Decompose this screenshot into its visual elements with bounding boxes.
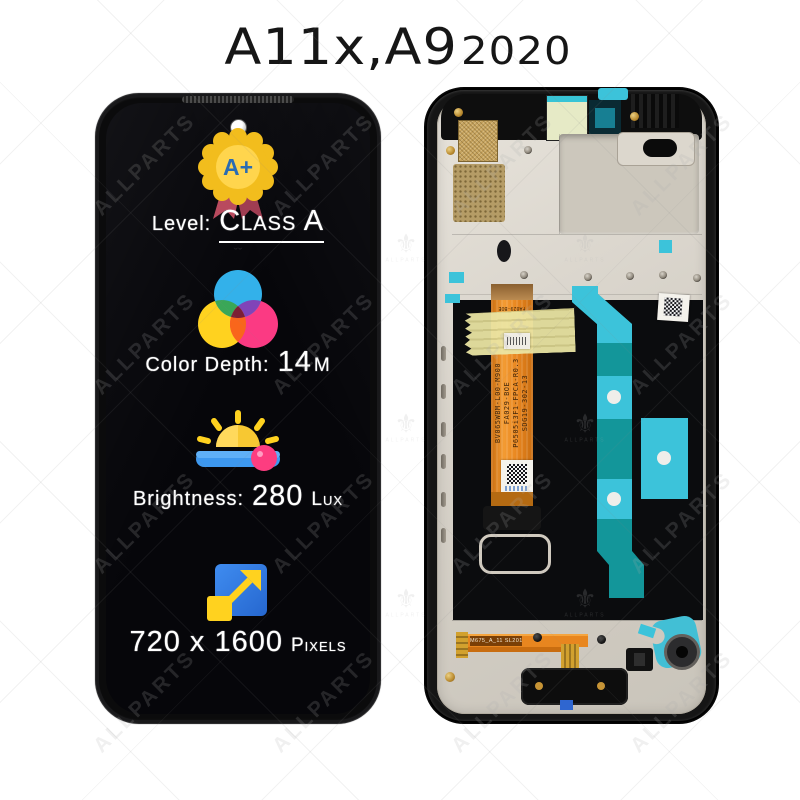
brightness-unit: Lux	[311, 489, 343, 511]
gold-connector	[561, 644, 579, 668]
sensor-bracket	[626, 648, 653, 671]
watermark-logo-caption: ALLPARTS	[385, 259, 426, 264]
rail-slot	[441, 384, 446, 399]
model-year: 2020	[461, 29, 572, 73]
color-depth-number: 14	[278, 346, 312, 379]
flex-top-connector	[491, 284, 533, 300]
earpiece-grille	[182, 96, 294, 103]
flex-top-print: FA029-BOE	[495, 302, 529, 311]
watermark-logo-caption: ALLPARTS	[385, 439, 426, 444]
rail-slot	[441, 492, 446, 507]
bottom-flex-print: M675_A_11 SL2012	[470, 636, 522, 646]
resolution-number: 720 x 1600	[129, 626, 283, 659]
product-image: A11x,A9 2020 A+	[0, 0, 800, 800]
lotus-icon: ⚜	[385, 411, 426, 437]
bottom-flex-trace	[465, 647, 561, 652]
speaker-contact	[535, 682, 543, 690]
spec-resolution: 720 x 1600pixels	[106, 626, 370, 659]
spec-level: Level: Class A	[106, 205, 370, 243]
brightness-number: 280	[252, 480, 303, 513]
grade-badge-text: A+	[223, 154, 253, 180]
qr-code	[663, 297, 682, 316]
watermark-logo: ⚜ALLPARTS	[385, 231, 426, 264]
lotus-icon: ⚜	[385, 586, 426, 612]
cyan-tab	[445, 294, 460, 303]
lotus-icon: ⚜	[385, 411, 426, 437]
spec-color-depth: Color Depth: 14m	[106, 346, 370, 379]
barcode	[507, 337, 527, 345]
screw-black	[597, 635, 606, 644]
connector-bracket	[479, 534, 551, 574]
phone-screen: A+ Level: Class A ˇˇ	[106, 103, 370, 714]
label-text-row	[505, 486, 529, 491]
cyan-tab	[449, 272, 464, 283]
watermark-logo: ⚜ALLPARTS	[385, 231, 426, 264]
mini-barcode-label	[504, 333, 530, 349]
sensor-notch	[634, 653, 645, 666]
cyan-tab	[598, 88, 628, 100]
watermark-logo-caption: ALLPARTS	[385, 614, 426, 619]
rail-slot	[441, 422, 446, 437]
watermark-logo-caption: ALLPARTS	[385, 439, 426, 444]
resolution-unit: pixels	[291, 635, 347, 657]
level-label: Level:	[152, 213, 211, 236]
spec-brightness: Brightness: 280Lux	[106, 480, 370, 513]
brightness-label: Brightness:	[133, 488, 244, 511]
gold-contact-pads	[456, 632, 468, 658]
lotus-icon: ⚜	[385, 231, 426, 257]
rear-camera-lens	[676, 646, 688, 658]
watermark-logo: ⚜ALLPARTS	[385, 586, 426, 619]
blue-sticker	[560, 700, 573, 710]
screw-gold	[445, 672, 455, 682]
model-name: A11x,A9	[225, 18, 459, 76]
flex-qr-label	[501, 460, 533, 494]
color-depth-unit: m	[314, 355, 331, 377]
watermark-logo-caption: ALLPARTS	[385, 259, 426, 264]
resolution-icon	[206, 561, 270, 625]
watermark-logo: ⚜ALLPARTS	[385, 586, 426, 619]
rail-slot	[441, 454, 446, 469]
page-title: A11x,A9 2020	[0, 18, 800, 76]
rail-slot	[441, 528, 446, 543]
phone-back-assembly: BV065WBM-L00-M900 FA029-BOE P6505i3F1-FP…	[424, 87, 719, 724]
divider-chevron: ˇˇ	[106, 245, 370, 260]
lotus-icon: ⚜	[385, 231, 426, 257]
level-value: Class A	[219, 205, 324, 243]
flex-connector	[483, 506, 541, 530]
phone-front: A+ Level: Class A ˇˇ	[95, 93, 381, 724]
color-depth-label: Color Depth:	[145, 354, 269, 377]
watermark-logo-caption: ALLPARTS	[385, 614, 426, 619]
cyan-tab	[659, 240, 672, 253]
rail-slot	[441, 346, 446, 361]
watermark-logo: ⚜ALLPARTS	[385, 411, 426, 444]
speaker-contact	[597, 682, 605, 690]
lotus-icon: ⚜	[385, 586, 426, 612]
loudspeaker-module	[521, 668, 628, 705]
brightness-icon	[178, 407, 298, 479]
watermark-logo: ⚜ALLPARTS	[385, 411, 426, 444]
corner-qr-label	[657, 293, 690, 322]
screw-black	[533, 633, 542, 642]
qr-code	[507, 464, 527, 484]
